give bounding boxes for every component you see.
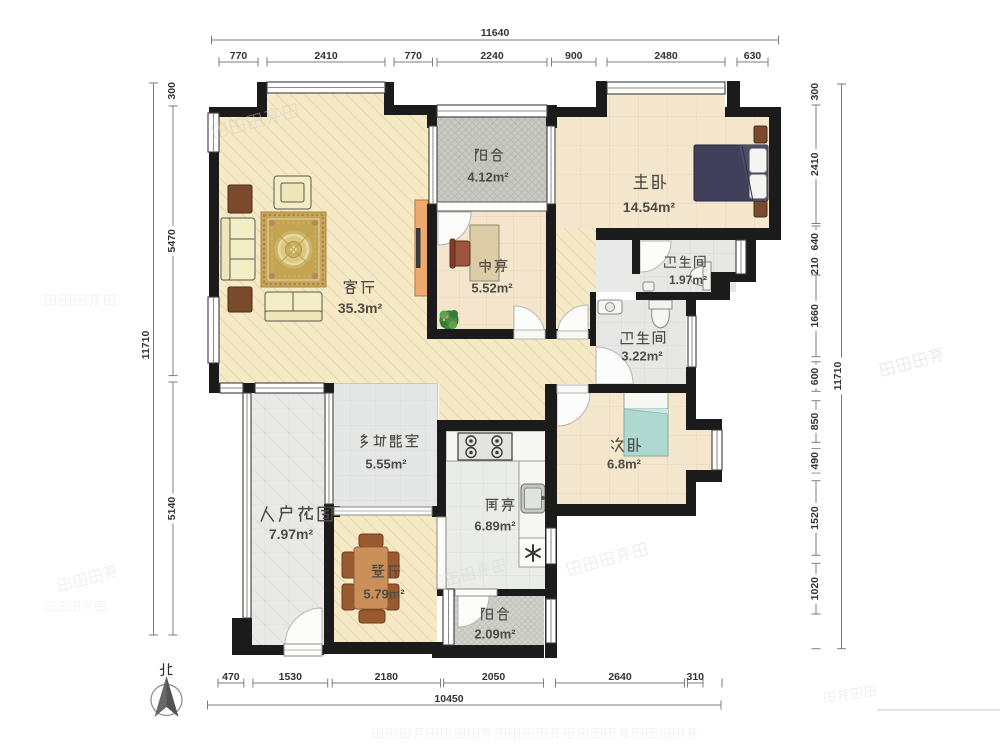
svg-text:630: 630 <box>744 50 762 62</box>
svg-text:5.52m²: 5.52m² <box>471 281 513 296</box>
svg-text:5.55m²: 5.55m² <box>365 457 407 472</box>
svg-text:1.97m²: 1.97m² <box>669 273 707 287</box>
svg-text:490: 490 <box>809 452 821 470</box>
svg-text:7.97m²: 7.97m² <box>269 526 314 542</box>
svg-text:14.54m²: 14.54m² <box>623 199 675 215</box>
svg-text:600: 600 <box>809 368 821 386</box>
svg-text:35.3m²: 35.3m² <box>338 300 383 316</box>
svg-text:3.22m²: 3.22m² <box>621 349 663 364</box>
svg-text:2410: 2410 <box>809 152 821 176</box>
svg-text:900: 900 <box>565 50 583 62</box>
svg-text:2480: 2480 <box>654 50 678 62</box>
svg-text:2.09m²: 2.09m² <box>474 627 516 642</box>
svg-text:1020: 1020 <box>809 577 821 601</box>
svg-text:11710: 11710 <box>140 331 152 360</box>
svg-text:2410: 2410 <box>314 50 338 62</box>
svg-text:4.12m²: 4.12m² <box>467 170 509 185</box>
svg-text:11640: 11640 <box>481 27 510 39</box>
svg-text:1520: 1520 <box>809 506 821 530</box>
svg-text:10450: 10450 <box>434 693 463 705</box>
svg-text:11710: 11710 <box>832 362 844 391</box>
svg-text:2240: 2240 <box>480 50 504 62</box>
svg-text:470: 470 <box>222 671 240 683</box>
svg-text:5470: 5470 <box>166 229 178 253</box>
svg-text:1660: 1660 <box>809 304 821 328</box>
svg-text:300: 300 <box>166 82 178 100</box>
svg-text:6.8m²: 6.8m² <box>607 457 642 472</box>
svg-text:5140: 5140 <box>166 497 178 521</box>
svg-text:770: 770 <box>230 50 248 62</box>
svg-text:6.89m²: 6.89m² <box>474 519 516 534</box>
svg-text:1530: 1530 <box>279 671 303 683</box>
svg-text:640: 640 <box>809 233 821 251</box>
svg-text:210: 210 <box>809 257 821 275</box>
svg-text:2050: 2050 <box>482 671 506 683</box>
svg-text:310: 310 <box>686 671 704 683</box>
svg-text:300: 300 <box>809 83 821 101</box>
svg-text:5.79m²: 5.79m² <box>363 587 405 602</box>
svg-text:770: 770 <box>404 50 422 62</box>
svg-text:2180: 2180 <box>375 671 399 683</box>
svg-text:850: 850 <box>809 413 821 431</box>
svg-text:2640: 2640 <box>608 671 632 683</box>
